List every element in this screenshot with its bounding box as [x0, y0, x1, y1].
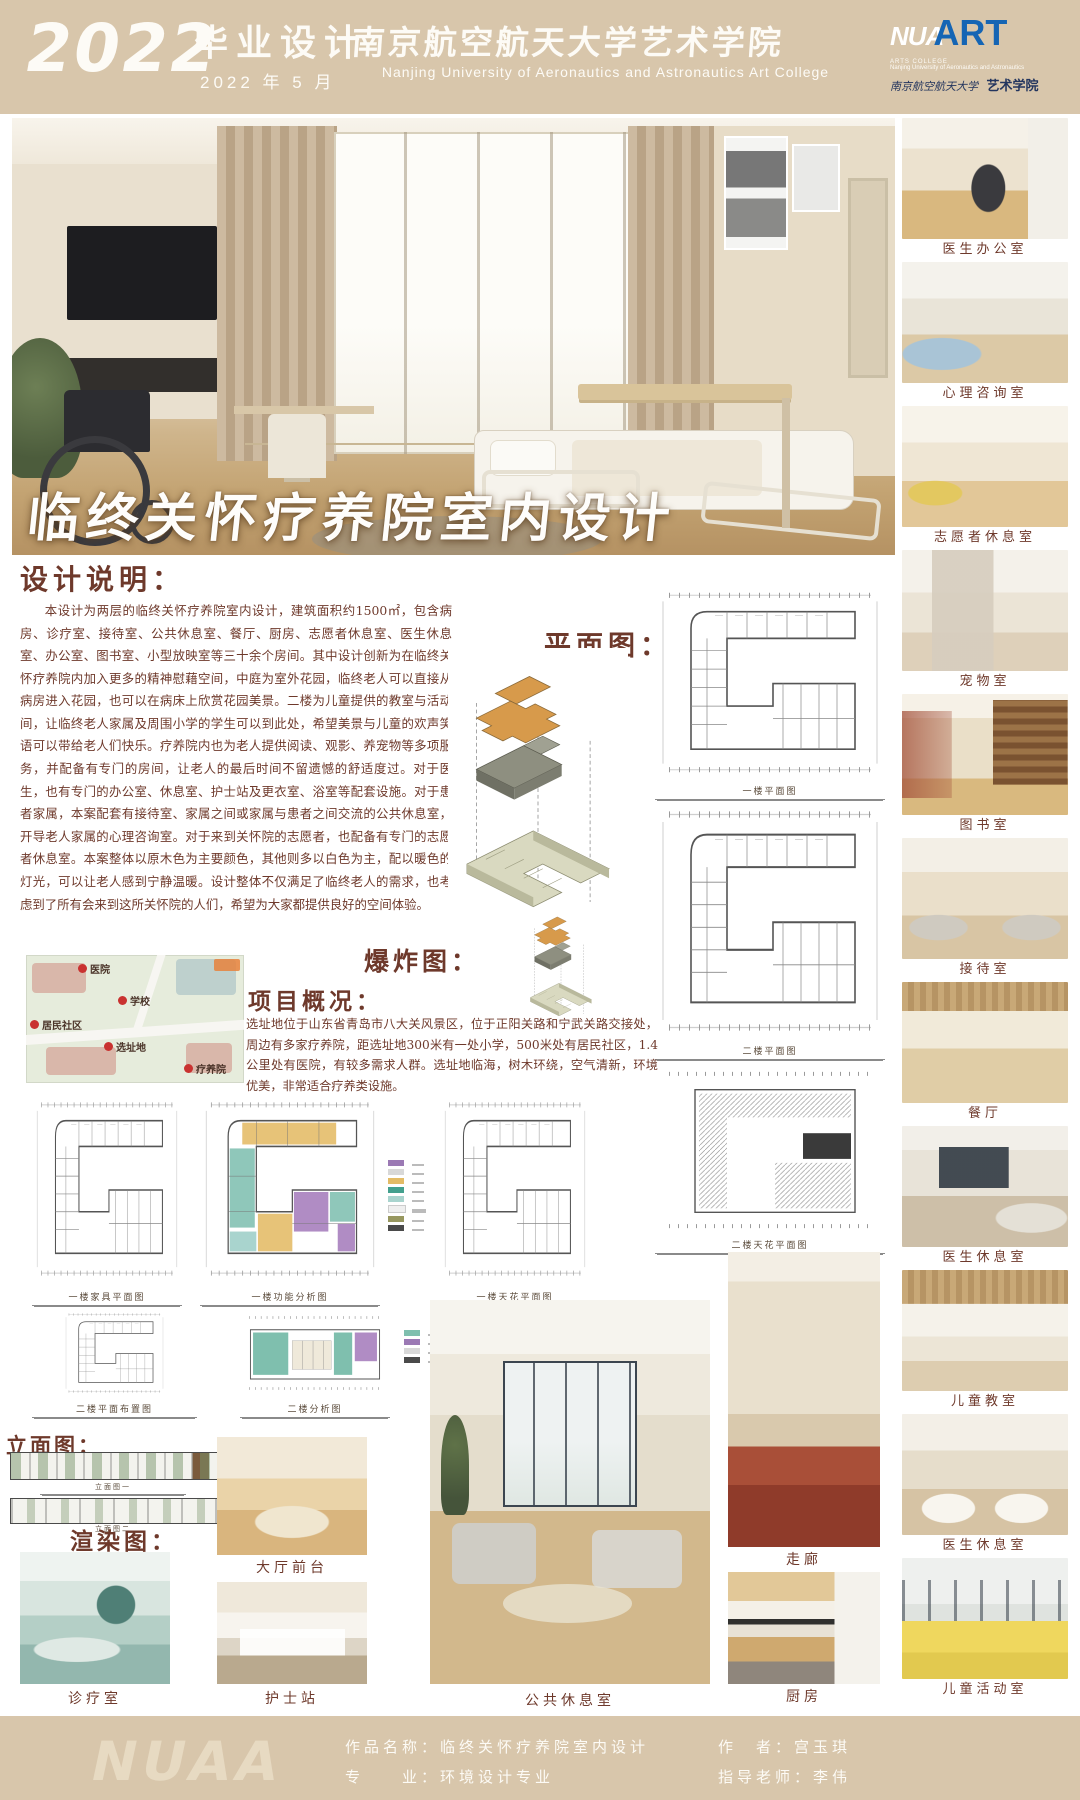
ceiling-plan-level2 — [655, 1066, 885, 1234]
logo-seal-art: 艺术学院 — [986, 78, 1038, 93]
floor-plan-level2 — [655, 802, 885, 1040]
hero-curtain-right — [628, 126, 716, 461]
render-library — [902, 694, 1068, 815]
nuaa-art-logo: NUAART ARTS COLLEGE Nanjing University o… — [890, 16, 1066, 95]
logo-art-text: ART — [933, 12, 1007, 53]
elevation-caption: 立面图一 — [40, 1482, 186, 1495]
render-caption: 医生休息室 — [902, 1247, 1068, 1269]
layout-plan-level2 — [32, 1310, 197, 1396]
render-doctor-bedroom — [902, 1414, 1068, 1535]
nuaa-watermark: NUAA — [85, 1730, 289, 1793]
floor-plan-caption: 一楼家具平面图 — [32, 1290, 182, 1306]
lounge-sofa — [452, 1523, 536, 1584]
hero-door — [848, 178, 888, 378]
lounge-rug — [503, 1584, 632, 1622]
render-caption: 儿童活动室 — [902, 1679, 1068, 1701]
render-volunteer-lounge — [902, 406, 1068, 527]
hero-desk — [234, 406, 374, 414]
map-dot — [118, 996, 127, 1005]
render-section-label: 渲染图： — [70, 1522, 178, 1556]
legend-swatch — [388, 1225, 404, 1231]
hero-table-pole — [782, 398, 790, 528]
hero-wall-art-1 — [726, 138, 786, 248]
sidebar-item-dining-hall: 餐厅 — [902, 982, 1068, 1125]
sidebar-item-doctor-office: 医生办公室 — [902, 118, 1068, 261]
site-map: 医院 学校 居民社区 选址地 疗养院 — [26, 955, 244, 1083]
zoning-legend-2 — [404, 1330, 420, 1363]
legend-swatch — [388, 1178, 404, 1184]
legend-swatch — [404, 1339, 420, 1345]
render-dining-hall — [902, 982, 1068, 1103]
floor-plan-level1 — [655, 585, 885, 780]
sidebar-item-reception-room: 接待室 — [902, 838, 1068, 981]
sidebar-item-pet-room: 宠物室 — [902, 550, 1068, 693]
hero-chair — [268, 414, 326, 478]
render-lobby-front-desk — [217, 1437, 367, 1555]
footer-advisor: 指导老师：李伟 — [718, 1766, 851, 1787]
header-date: 2022 年 5 月 — [200, 68, 335, 93]
room-render-sidebar: 医生办公室 心理咨询室 志愿者休息室 宠物室 图书室 接待室 餐厅 医生休息室 — [902, 118, 1068, 1701]
render-pet-room — [902, 550, 1068, 671]
map-dot — [184, 1064, 193, 1073]
project-overview-heading: 项目概况： — [248, 982, 383, 1016]
map-badge — [214, 959, 240, 971]
logo-subline-2: Nanjing University of Aeronautics and As… — [890, 65, 1066, 71]
map-dot — [78, 964, 87, 973]
footer-work-title: 作品名称：临终关怀疗养院室内设计 — [345, 1736, 649, 1757]
hero-wall-art-2 — [794, 146, 838, 210]
render-corridor — [728, 1252, 880, 1547]
sidebar-item-doctor-bedroom: 医生休息室 — [902, 1414, 1068, 1557]
map-marker-hospital: 医院 — [78, 961, 110, 976]
render-doctor-office — [902, 118, 1068, 239]
elevation-drawing-1 — [10, 1452, 218, 1480]
hero-tv-cabinet — [52, 358, 242, 392]
lounge-sofa — [592, 1530, 682, 1588]
render-doctor-lounge — [902, 1126, 1068, 1247]
school-name-en: Nanjing University of Aeronautics and As… — [318, 64, 893, 80]
legend-swatch — [388, 1160, 404, 1166]
render-caption: 餐厅 — [902, 1103, 1068, 1125]
legend-swatch — [388, 1216, 404, 1222]
render-caption: 护士站 — [217, 1688, 367, 1708]
sidebar-item-children-classroom: 儿童教室 — [902, 1270, 1068, 1413]
school-name-cn: 南京航空航天大学艺术学院 — [350, 16, 785, 64]
map-dot — [104, 1042, 113, 1051]
legend-swatch — [388, 1196, 404, 1202]
map-marker-community: 居民社区 — [30, 1017, 82, 1032]
render-reception-room — [902, 838, 1068, 959]
render-caption: 医生休息室 — [902, 1535, 1068, 1557]
lounge-plant — [441, 1415, 469, 1515]
footer-major: 专 业：环境设计专业 — [345, 1766, 554, 1787]
render-common-lounge — [430, 1300, 710, 1684]
render-clinic — [20, 1552, 170, 1684]
render-counseling-room — [902, 262, 1068, 383]
poster: 2022 毕业设计 2022 年 5 月 南京航空航天大学艺术学院 Nanjin… — [0, 0, 1080, 1800]
furniture-plan-level1 — [32, 1095, 182, 1283]
render-caption: 诊疗室 — [20, 1688, 170, 1708]
lounge-window-mullions — [503, 1361, 637, 1507]
floor-plan-caption: 二楼分析图 — [240, 1402, 390, 1418]
analysis-plan-level2 — [240, 1312, 390, 1394]
legend-swatch — [404, 1348, 420, 1354]
legend-swatch — [404, 1357, 420, 1363]
map-dot — [30, 1020, 39, 1029]
ceiling-plan-level1 — [440, 1095, 590, 1283]
footer-band: NUAA 作品名称：临终关怀疗养院室内设计 专 业：环境设计专业 作 者：宫玉琪… — [0, 1716, 1080, 1800]
hero-tv — [67, 226, 217, 320]
legend-swatch — [388, 1205, 406, 1213]
hero-overbed-table — [578, 384, 792, 400]
elevation-drawing-2 — [10, 1498, 218, 1524]
render-nurse-station — [217, 1582, 367, 1684]
sidebar-item-children-playroom: 儿童活动室 — [902, 1558, 1068, 1701]
map-marker-nursing-home: 疗养院 — [184, 1061, 226, 1076]
render-children-classroom — [902, 1270, 1068, 1391]
render-caption: 医生办公室 — [902, 239, 1068, 261]
sidebar-item-volunteer-lounge: 志愿者休息室 — [902, 406, 1068, 549]
zoning-plan-level1 — [200, 1095, 380, 1283]
render-children-playroom — [902, 1558, 1068, 1679]
legend-swatch — [388, 1187, 404, 1193]
legend-swatch — [388, 1169, 404, 1175]
zoning-legend — [388, 1160, 406, 1231]
exploded-axonometric-large — [448, 648, 628, 938]
sidebar-item-doctor-lounge: 医生休息室 — [902, 1126, 1068, 1269]
sidebar-item-counseling-room: 心理咨询室 — [902, 262, 1068, 405]
render-caption: 儿童教室 — [902, 1391, 1068, 1413]
map-marker-site: 选址地 — [104, 1039, 146, 1054]
render-caption: 心理咨询室 — [902, 383, 1068, 405]
map-marker-school: 学校 — [118, 993, 150, 1008]
render-caption: 厨房 — [728, 1686, 880, 1706]
floor-plan-caption: 二楼平面图 — [655, 1044, 885, 1060]
explode-section-label: 爆炸图： — [364, 942, 480, 978]
design-note-heading: 设计说明： — [20, 558, 185, 598]
exploded-axonometric-small — [486, 912, 636, 1022]
floor-plan-caption: 一楼平面图 — [655, 784, 885, 800]
design-note-body: 本设计为两层的临终关怀疗养院室内设计，建筑面积约1500㎡，包含病房、诊疗室、接… — [20, 600, 452, 948]
program-title: 毕业设计 — [192, 14, 368, 66]
render-caption: 大厅前台 — [217, 1557, 367, 1577]
footer-author: 作 者：宫玉琪 — [718, 1736, 851, 1757]
render-kitchen — [728, 1572, 880, 1684]
render-caption: 志愿者休息室 — [902, 527, 1068, 549]
render-caption: 公共休息室 — [430, 1690, 710, 1710]
logo-seal-cn: 南京航空航天大学 — [890, 80, 978, 93]
header-band: 2022 毕业设计 2022 年 5 月 南京航空航天大学艺术学院 Nanjin… — [0, 0, 1080, 114]
floor-plan-caption: 一楼功能分析图 — [200, 1290, 380, 1306]
poster-title: 临终关怀疗养院室内设计 — [24, 476, 681, 551]
render-caption: 接待室 — [902, 959, 1068, 981]
render-caption: 图书室 — [902, 815, 1068, 837]
render-caption: 走廊 — [728, 1549, 880, 1569]
render-caption: 宠物室 — [902, 671, 1068, 693]
sidebar-item-library: 图书室 — [902, 694, 1068, 837]
hero-render: 临终关怀疗养院室内设计 — [12, 118, 895, 555]
floor-plan-caption: 二楼平面布置图 — [32, 1402, 197, 1418]
hero-window-mullions — [334, 132, 630, 454]
legend-swatch — [404, 1330, 420, 1336]
hero-bed-rail-2 — [700, 481, 881, 541]
